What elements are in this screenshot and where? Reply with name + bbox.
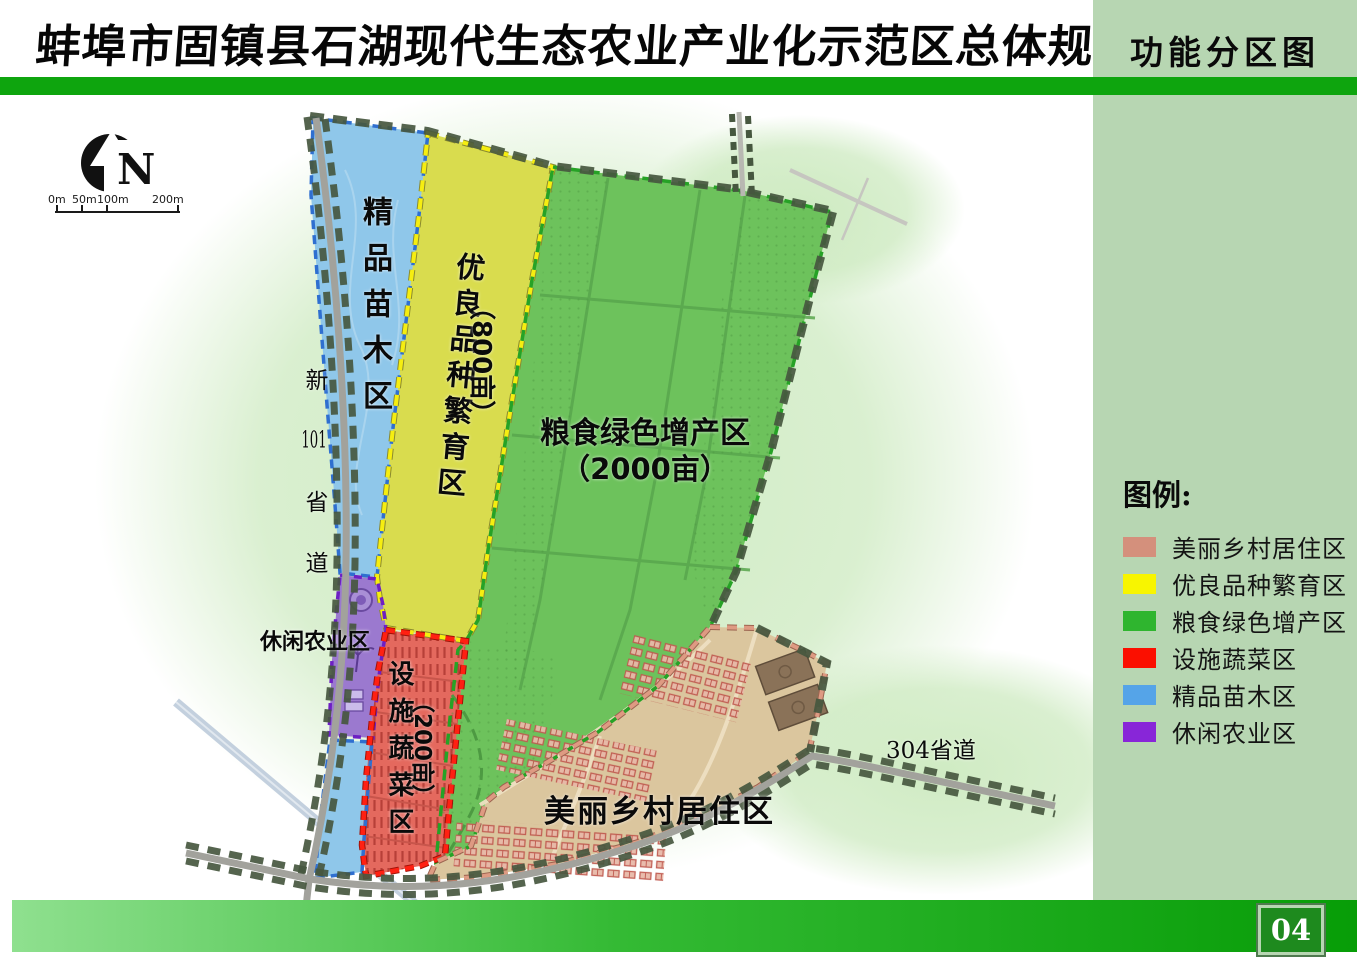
legend-swatch xyxy=(1123,722,1156,742)
legend-swatch xyxy=(1123,685,1156,705)
scale-tick-label: 0m xyxy=(48,193,66,206)
footer-bar xyxy=(12,900,1357,952)
zone-label-liangshi-area: （2000亩） xyxy=(540,446,750,488)
north-label: N xyxy=(117,145,155,194)
legend-item: 美丽乡村居住区 xyxy=(1123,528,1343,565)
map-title: 功能分区图 xyxy=(1093,26,1357,74)
zone-label-xiuxian-nongye: 休闲农业区 xyxy=(260,624,370,656)
legend-swatch xyxy=(1123,611,1156,631)
road-label-101-part: 101 xyxy=(301,429,327,452)
legend-title: 图例: xyxy=(1123,472,1343,514)
legend-item: 休闲农业区 xyxy=(1123,713,1343,750)
road-label-101-part: 道 xyxy=(301,551,327,574)
legend-item-label: 美丽乡村居住区 xyxy=(1172,529,1347,564)
page-number: 04 xyxy=(1261,908,1321,952)
north-arrow: N xyxy=(81,130,155,194)
legend-item: 精品苗木区 xyxy=(1123,676,1343,713)
legend: 图例: 美丽乡村居住区 优良品种繁育区 粮食绿色增产区 设施蔬菜区 精品苗木区 xyxy=(1123,472,1343,750)
zone-label-sheshi-area: （200亩） xyxy=(408,690,442,807)
zone-label-youliang-area: （800亩） xyxy=(465,294,502,426)
road-label-304: 304省道 xyxy=(886,731,976,765)
road-label-101: 新 101 省 道 xyxy=(297,368,331,574)
legend-swatch xyxy=(1123,537,1156,557)
legend-item-label: 精品苗木区 xyxy=(1172,677,1297,712)
zone-label-jingpin-miaomu: 精品苗木区 xyxy=(352,196,396,426)
page-number-box: 04 xyxy=(1256,903,1326,957)
legend-item: 优良品种繁育区 xyxy=(1123,565,1343,602)
zone-label-meili-xiangcun: 美丽乡村居住区 xyxy=(544,786,775,831)
header-green-bar xyxy=(0,77,1357,95)
scale-tick-label: 100m xyxy=(97,193,129,206)
page: N 0m 50m 100m 200m 精品苗木区 优良品种繁育区 （800亩） … xyxy=(0,0,1369,964)
legend-item-label: 设施蔬菜区 xyxy=(1172,640,1297,675)
legend-swatch xyxy=(1123,574,1156,594)
scale-bar: 0m 50m 100m 200m xyxy=(48,193,184,212)
sidebar: 功能分区图 图例: 美丽乡村居住区 优良品种繁育区 粮食绿色增产区 设施蔬菜区 … xyxy=(1093,0,1357,952)
legend-item: 设施蔬菜区 xyxy=(1123,639,1343,676)
legend-item-label: 粮食绿色增产区 xyxy=(1172,603,1347,638)
scale-tick-label: 50m xyxy=(72,193,97,206)
legend-item-label: 优良品种繁育区 xyxy=(1172,566,1347,601)
scale-tick-label: 200m xyxy=(152,193,184,206)
legend-item: 粮食绿色增产区 xyxy=(1123,602,1343,639)
legend-item-label: 休闲农业区 xyxy=(1172,714,1297,749)
road-label-101-part: 新 xyxy=(301,368,327,391)
road-label-101-part: 省 xyxy=(301,490,327,513)
legend-swatch xyxy=(1123,648,1156,668)
